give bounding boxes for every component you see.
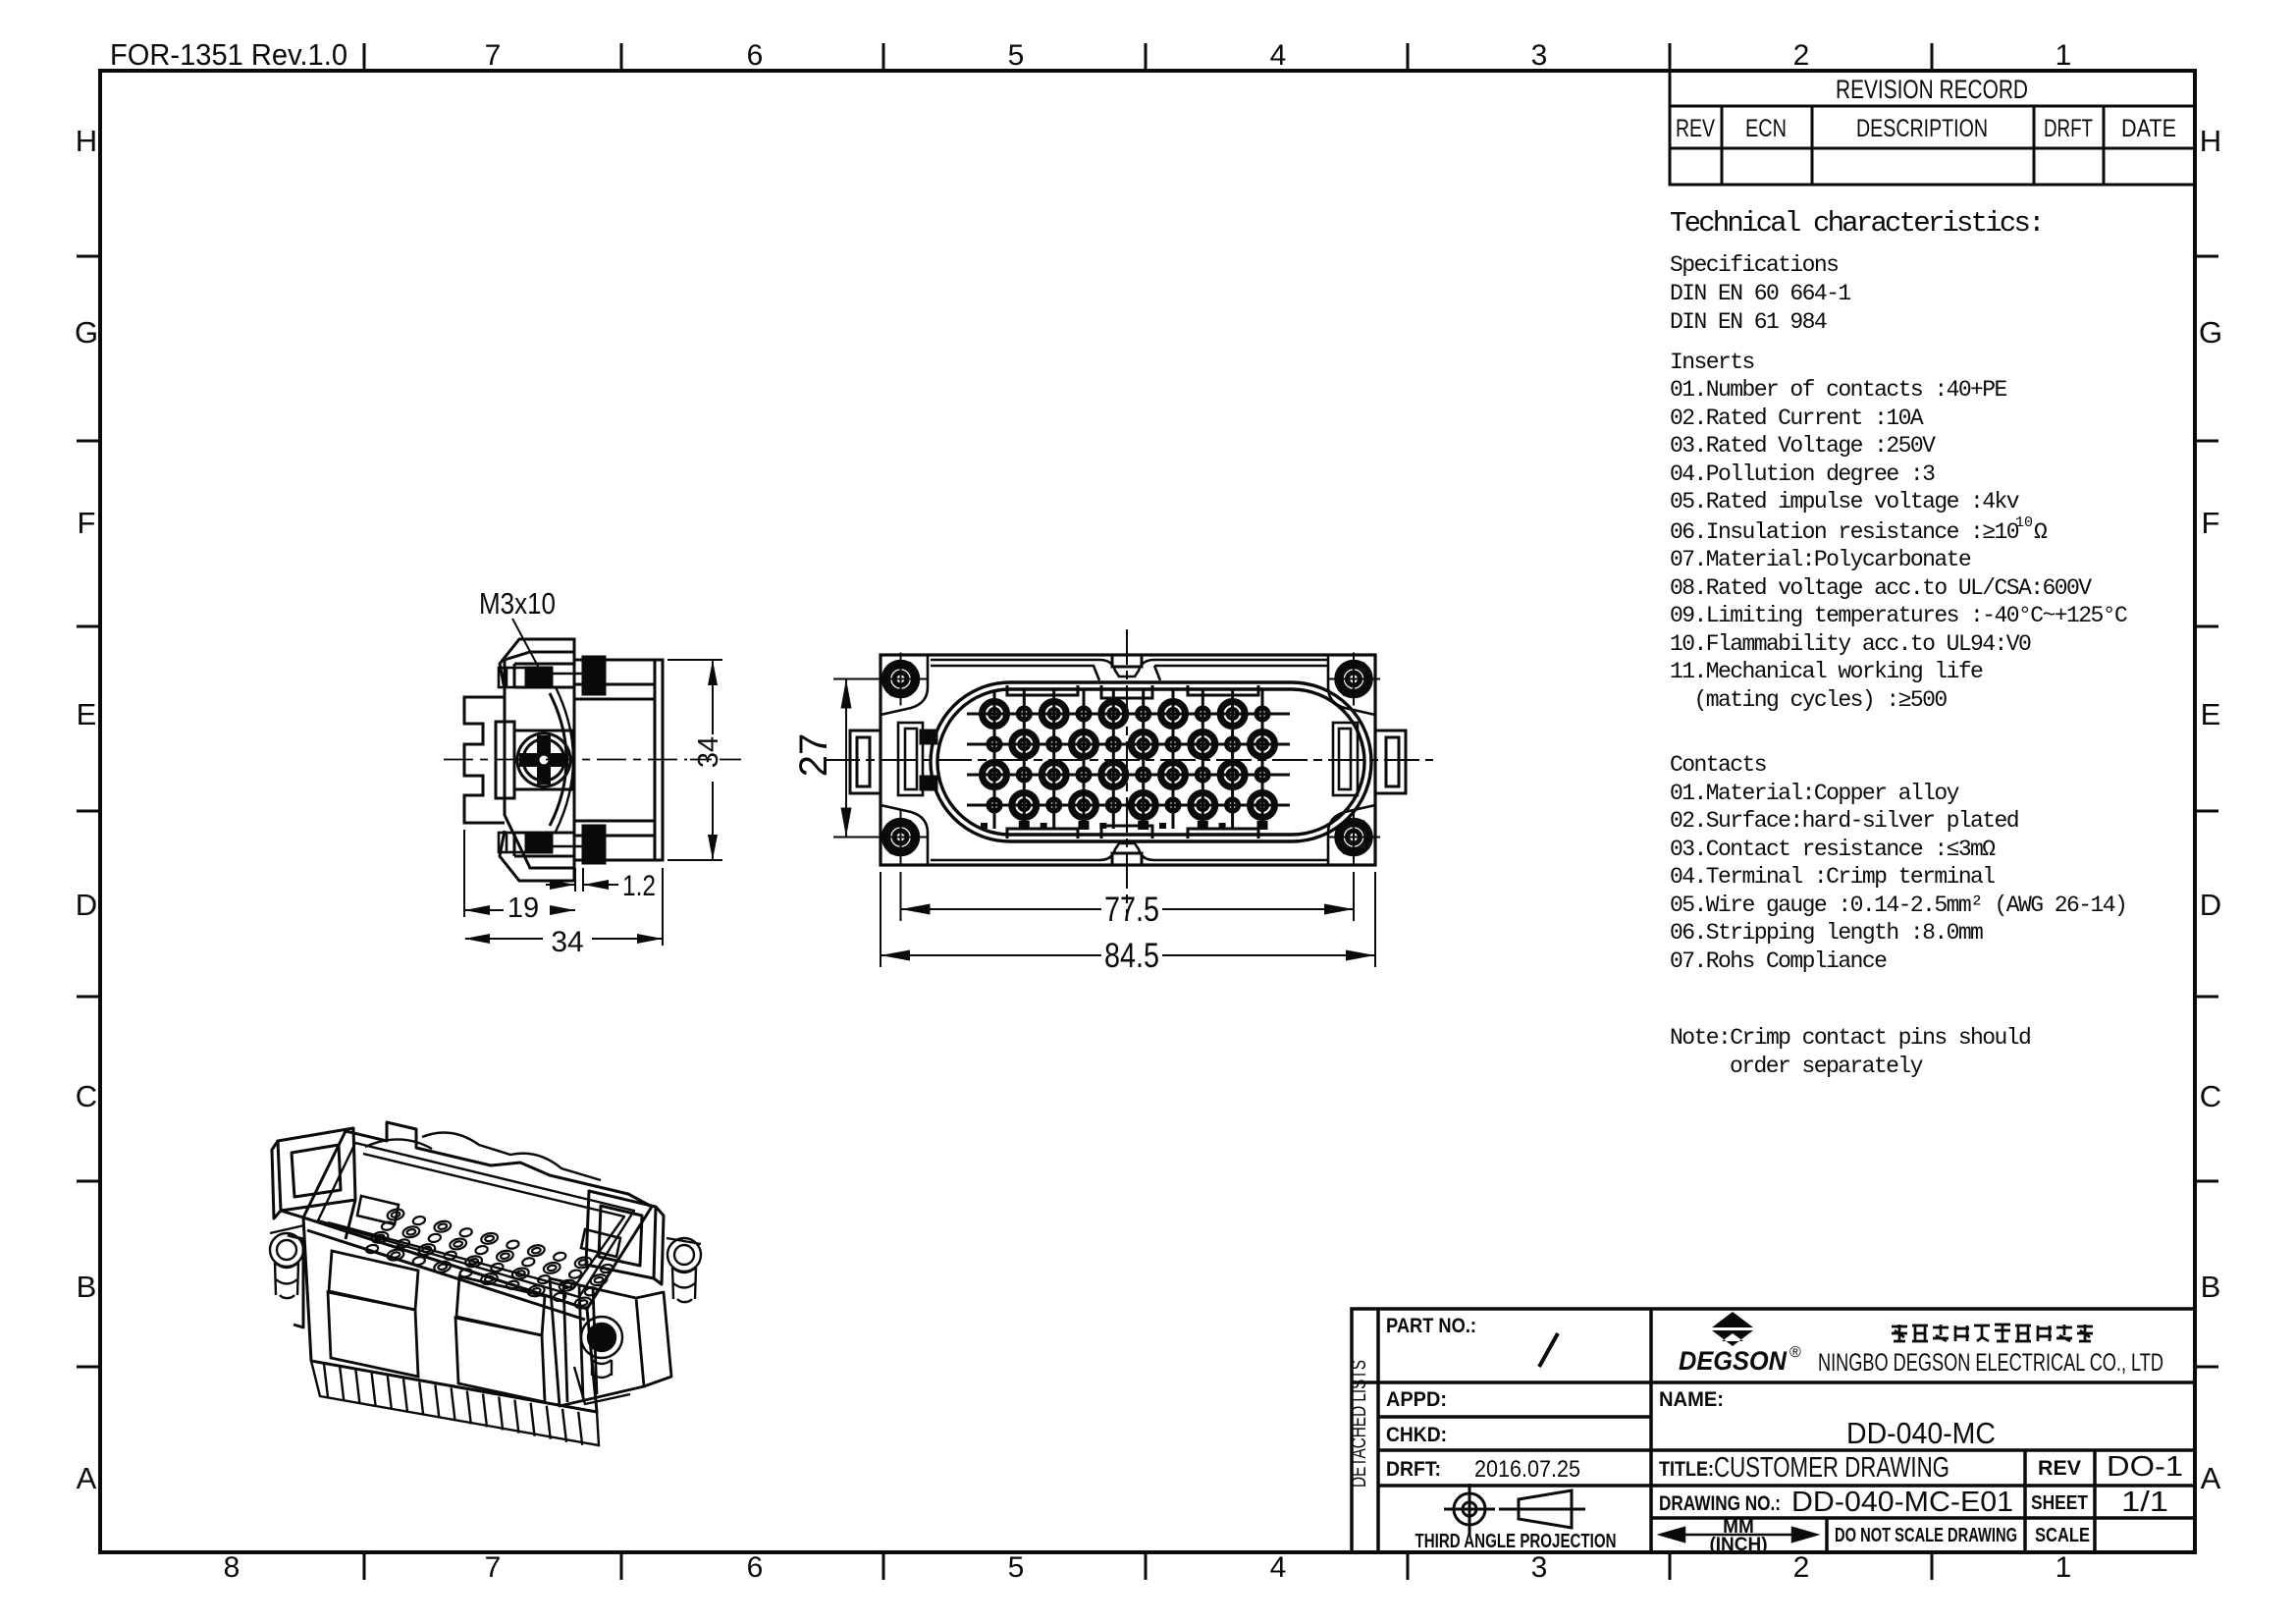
svg-text:01.Material:Copper alloy: 01.Material:Copper alloy	[1670, 781, 1960, 806]
svg-text:REV: REV	[1676, 115, 1715, 142]
svg-text:E: E	[77, 697, 97, 731]
svg-text:®: ®	[1789, 1344, 1801, 1361]
svg-text:NINGBO DEGSON ELECTRICAL CO.,: NINGBO DEGSON ELECTRICAL CO., LTD	[1818, 1349, 2163, 1377]
svg-text:Inserts: Inserts	[1670, 350, 1754, 375]
svg-text:02.Rated Current :10A: 02.Rated Current :10A	[1670, 406, 1924, 431]
svg-text:E: E	[2201, 697, 2221, 731]
svg-text:TITLE:: TITLE:	[1659, 1458, 1714, 1481]
svg-text:order separately: order separately	[1730, 1054, 1924, 1079]
svg-text:D: D	[76, 888, 97, 922]
svg-text:(INCH): (INCH)	[1709, 1535, 1767, 1555]
svg-text:CUSTOMER DRAWING: CUSTOMER DRAWING	[1714, 1452, 1949, 1484]
svg-text:Ω: Ω	[2034, 519, 2048, 545]
svg-text:SCALE: SCALE	[2035, 1525, 2090, 1546]
svg-text:10.Flammability acc.to UL94:V0: 10.Flammability acc.to UL94:V0	[1670, 631, 2031, 657]
svg-text:D: D	[2200, 888, 2221, 922]
svg-text:Specifications: Specifications	[1670, 252, 1838, 278]
svg-text:06.Insulation resistance :≥10: 06.Insulation resistance :≥10	[1670, 519, 2019, 545]
svg-text:05.Wire gauge :0.14-2.5mm² (AW: 05.Wire gauge :0.14-2.5mm² (AWG 26-14)	[1670, 893, 2126, 918]
svg-text:19: 19	[507, 893, 539, 924]
svg-text:1/1: 1/1	[2121, 1487, 2168, 1518]
svg-text:B: B	[2201, 1270, 2221, 1304]
svg-text:07.Rohs Compliance: 07.Rohs Compliance	[1670, 948, 1887, 974]
svg-text:DEGSON: DEGSON	[1679, 1346, 1787, 1376]
svg-text:Contacts: Contacts	[1670, 752, 1766, 778]
svg-text:C: C	[76, 1079, 97, 1113]
svg-text:1.2: 1.2	[622, 870, 656, 902]
svg-text:REVISION RECORD: REVISION RECORD	[1836, 75, 2028, 104]
svg-text:6: 6	[747, 39, 764, 72]
svg-text:DRFT:: DRFT:	[1386, 1458, 1441, 1481]
svg-text:34: 34	[693, 736, 724, 768]
svg-text:Note:Crimp contact pins should: Note:Crimp contact pins should	[1670, 1025, 2030, 1051]
svg-text:H: H	[2200, 124, 2221, 158]
svg-text:DD-040-MC: DD-040-MC	[1846, 1416, 1996, 1450]
svg-text:3: 3	[1531, 39, 1548, 72]
svg-text:Technical characteristics:: Technical characteristics:	[1670, 207, 2043, 240]
svg-text:6: 6	[747, 1551, 764, 1584]
svg-text:7: 7	[485, 1551, 502, 1584]
svg-text:F: F	[78, 506, 96, 540]
svg-text:APPD:: APPD:	[1386, 1388, 1447, 1411]
svg-text:DO NOT SCALE DRAWING: DO NOT SCALE DRAWING	[1835, 1525, 2017, 1546]
svg-text:DRFT: DRFT	[2044, 115, 2093, 142]
svg-text:DIN EN 60 664-1: DIN EN 60 664-1	[1670, 281, 1850, 306]
svg-text:REV: REV	[2038, 1457, 2081, 1480]
svg-text:11.Mechanical working life: 11.Mechanical working life	[1670, 659, 1983, 684]
svg-text:84.5: 84.5	[1104, 937, 1159, 975]
svg-text:PART NO.:: PART NO.:	[1386, 1315, 1476, 1337]
svg-text:7: 7	[485, 39, 502, 72]
svg-text:H: H	[76, 124, 97, 158]
svg-text:02.Surface:hard-silver plated: 02.Surface:hard-silver plated	[1670, 808, 2018, 834]
svg-text:DIN EN 61 984: DIN EN 61 984	[1670, 309, 1827, 335]
svg-text:03.Rated Voltage :250V: 03.Rated Voltage :250V	[1670, 433, 1936, 459]
svg-text:2: 2	[1793, 39, 1810, 72]
svg-text:M3x10: M3x10	[479, 586, 556, 621]
svg-text:G: G	[2199, 315, 2222, 350]
svg-text:08.Rated voltage acc.to UL/CSA: 08.Rated voltage acc.to UL/CSA:600V	[1670, 575, 2092, 601]
svg-text:SHEET: SHEET	[2031, 1492, 2088, 1514]
svg-text:DESCRIPTION: DESCRIPTION	[1856, 115, 1988, 142]
svg-text:04.Pollution degree :3: 04.Pollution degree :3	[1670, 461, 1935, 487]
svg-text:DRAWING NO.:: DRAWING NO.:	[1659, 1492, 1781, 1515]
svg-text:04.Terminal :Crimp terminal: 04.Terminal :Crimp terminal	[1670, 864, 1995, 890]
svg-text:ECN: ECN	[1745, 115, 1787, 142]
svg-text:4: 4	[1270, 39, 1287, 72]
svg-text:G: G	[75, 315, 98, 350]
svg-text:DATE: DATE	[2121, 115, 2176, 142]
svg-text:DO-1: DO-1	[2107, 1451, 2183, 1483]
svg-text:5: 5	[1008, 39, 1025, 72]
svg-text:NAME:: NAME:	[1659, 1388, 1724, 1411]
svg-text:8: 8	[224, 1551, 240, 1584]
svg-text:77.5: 77.5	[1104, 891, 1159, 929]
svg-text:C: C	[2200, 1079, 2221, 1113]
svg-text:2016.07.25: 2016.07.25	[1474, 1456, 1580, 1483]
svg-text:06.Stripping length :8.0mm: 06.Stripping length :8.0mm	[1670, 920, 1983, 946]
svg-text:09.Limiting temperatures :-40: 09.Limiting temperatures :-40°C~+125°C	[1670, 603, 2127, 628]
svg-text:03.Contact resistance :≤3mΩ: 03.Contact resistance :≤3mΩ	[1670, 837, 1996, 862]
svg-text:(mating cycles) :≥500: (mating cycles) :≥500	[1694, 687, 1948, 713]
svg-text:DD-040-MC-E01: DD-040-MC-E01	[1791, 1487, 2013, 1518]
svg-text:01.Number of contacts :40+PE: 01.Number of contacts :40+PE	[1670, 377, 2007, 403]
svg-text:1: 1	[2056, 39, 2072, 72]
svg-text:2: 2	[1793, 1551, 1810, 1584]
svg-text:3: 3	[1531, 1551, 1548, 1584]
svg-text:27: 27	[792, 733, 835, 778]
svg-text:1: 1	[2056, 1551, 2072, 1584]
svg-text:F: F	[2202, 506, 2220, 540]
svg-text:10: 10	[2015, 514, 2033, 531]
svg-text:B: B	[77, 1270, 97, 1304]
svg-text:07.Material:Polycarbonate: 07.Material:Polycarbonate	[1670, 547, 1971, 572]
svg-text:THIRD ANGLE PROJECTION: THIRD ANGLE PROJECTION	[1415, 1531, 1617, 1552]
svg-text:CHKD:: CHKD:	[1386, 1424, 1447, 1446]
svg-text:05.Rated impulse voltage :4kv: 05.Rated impulse voltage :4kv	[1670, 489, 2020, 514]
svg-text:FOR-1351 Rev.1.0: FOR-1351 Rev.1.0	[110, 37, 347, 72]
svg-text:5: 5	[1008, 1551, 1025, 1584]
svg-text:DETACHED LISTS: DETACHED LISTS	[1348, 1360, 1370, 1488]
svg-text:4: 4	[1270, 1551, 1287, 1584]
svg-text:34: 34	[551, 926, 583, 958]
svg-text:A: A	[2201, 1461, 2221, 1495]
svg-text:A: A	[77, 1461, 97, 1495]
